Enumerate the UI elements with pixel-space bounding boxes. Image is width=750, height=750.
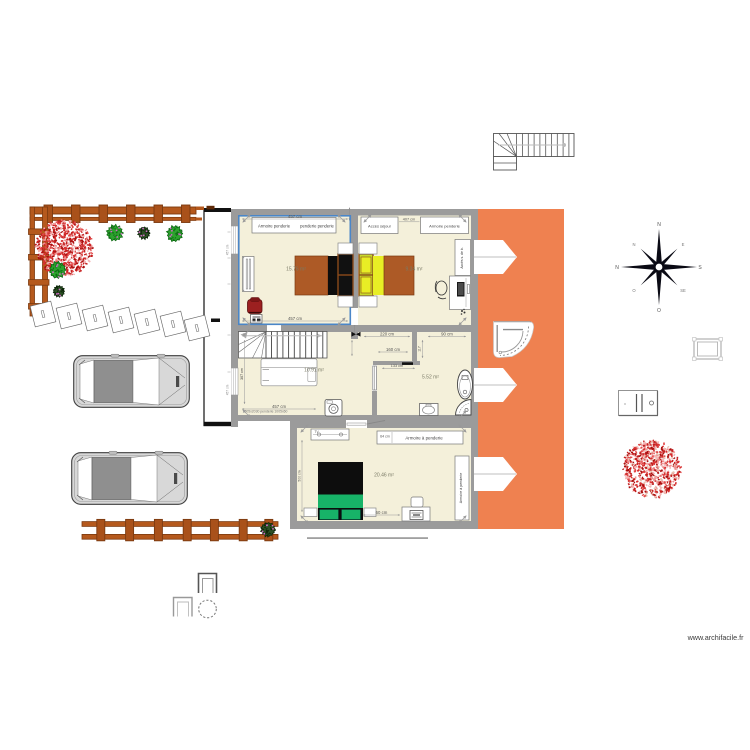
- svg-text:133 cm: 133 cm: [391, 364, 403, 368]
- svg-text:O: O: [657, 308, 661, 314]
- svg-text:N: N: [615, 265, 619, 271]
- svg-text:457 cm: 457 cm: [226, 244, 230, 255]
- svg-text:N: N: [632, 242, 635, 247]
- svg-text:457 cm: 457 cm: [288, 214, 303, 219]
- svg-text:457 cm: 457 cm: [272, 404, 287, 409]
- svg-text:Accès s. de b.: Accès s. de b.: [460, 247, 464, 268]
- svg-text:penderie penderie: penderie penderie: [300, 224, 334, 229]
- svg-text:60 cm: 60 cm: [376, 510, 388, 515]
- svg-text:307 cm: 307 cm: [240, 368, 244, 380]
- svg-text:407 cm: 407 cm: [403, 218, 415, 222]
- svg-text:E: E: [682, 242, 685, 247]
- svg-text:Armoire à penderie: Armoire à penderie: [459, 473, 463, 504]
- svg-text:10.91 m²: 10.91 m²: [304, 368, 324, 374]
- svg-text:N: N: [657, 222, 661, 228]
- svg-text:Armoire penderie: Armoire penderie: [258, 224, 291, 229]
- svg-text:www.archifacile.fr: www.archifacile.fr: [687, 633, 745, 642]
- svg-text:220 cm: 220 cm: [380, 331, 395, 336]
- svg-text:64 cm: 64 cm: [380, 435, 390, 439]
- svg-text:Armoire penderie: Armoire penderie: [429, 224, 460, 229]
- svg-text:5.52 m²: 5.52 m²: [422, 375, 439, 381]
- svg-text:500 cm: 500 cm: [298, 470, 302, 481]
- svg-text:1005x2030 penderie 1005x60: 1005x2030 penderie 1005x60: [243, 410, 288, 414]
- svg-text:457 cm: 457 cm: [226, 384, 230, 395]
- svg-text:117: 117: [418, 346, 422, 352]
- svg-text:20.46 m²: 20.46 m²: [374, 473, 394, 479]
- svg-text:9.34 m²: 9.34 m²: [406, 267, 423, 273]
- svg-text:457 cm: 457 cm: [288, 316, 303, 321]
- svg-text:15.76 m²: 15.76 m²: [286, 267, 306, 273]
- svg-text:Armoire à penderie: Armoire à penderie: [405, 436, 443, 441]
- svg-text:Accès séjour: Accès séjour: [368, 224, 392, 229]
- svg-text:160 cm: 160 cm: [386, 347, 401, 352]
- svg-text:90 cm: 90 cm: [441, 331, 453, 336]
- svg-text:SE: SE: [680, 288, 686, 293]
